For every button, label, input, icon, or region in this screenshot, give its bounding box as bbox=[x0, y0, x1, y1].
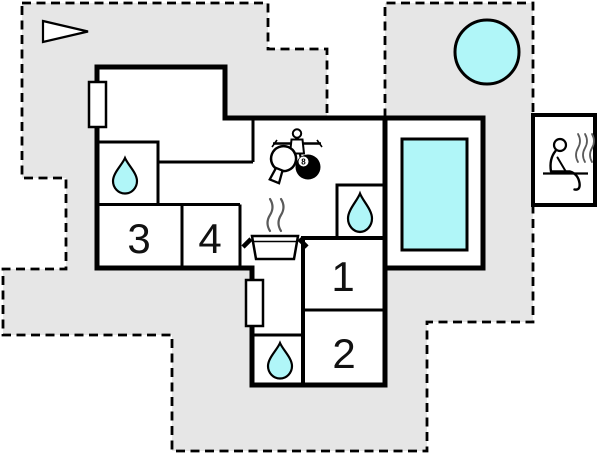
floor-plan-svg: 1 2 3 4 8 bbox=[0, 0, 600, 455]
room-2-label: 2 bbox=[332, 330, 355, 377]
floor-plan: 1 2 3 4 8 bbox=[0, 0, 600, 455]
pool-icon bbox=[402, 139, 467, 250]
door-icon bbox=[246, 280, 263, 326]
room-4-label: 4 bbox=[198, 215, 221, 262]
sauna-box bbox=[533, 115, 595, 205]
room-1-label: 1 bbox=[331, 253, 354, 300]
billiard-8ball-icon: 8 bbox=[296, 155, 321, 180]
window-icon bbox=[89, 82, 106, 127]
billiard-ball-number: 8 bbox=[301, 158, 306, 167]
hot-tub-icon bbox=[455, 20, 519, 84]
room-3-label: 3 bbox=[127, 215, 150, 262]
